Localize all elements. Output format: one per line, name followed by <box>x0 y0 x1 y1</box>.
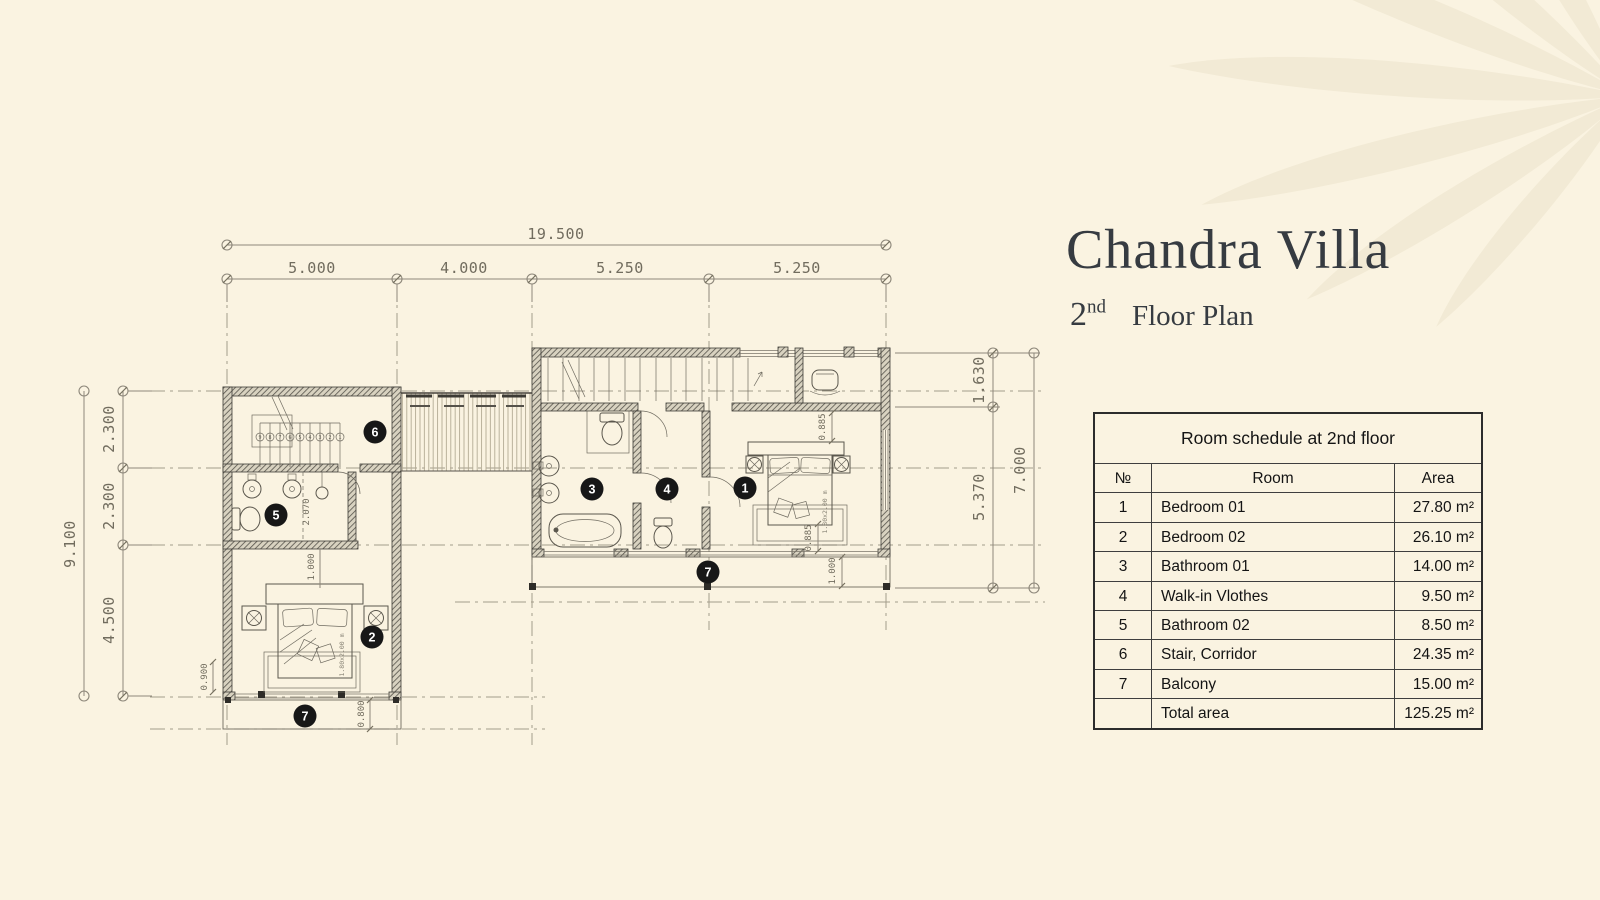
stair-tread-numbers: 9 8 7 6 5 4 3 2 1 <box>256 433 344 441</box>
dim-2070: 2.070 <box>302 498 312 525</box>
dim-right-2: 5.370 <box>970 473 988 521</box>
dim-left-3: 4.500 <box>100 596 118 644</box>
schedule-cell-room: Total area <box>1152 698 1395 727</box>
schedule-cell-room: Bedroom 01 <box>1152 492 1395 521</box>
svg-text:7: 7 <box>278 435 281 441</box>
schedule-header-room: Room <box>1152 463 1395 493</box>
dim-seg-4: 5.250 <box>773 259 821 277</box>
right-dimensions: 1.630 5.370 7.000 <box>895 348 1040 593</box>
schedule-cell-room: Stair, Corridor <box>1152 639 1395 668</box>
schedule-cell-area: 27.80 m² <box>1395 492 1481 521</box>
floor-ordinal: nd <box>1087 297 1106 318</box>
schedule-cell-area: 125.25 m² <box>1395 698 1481 727</box>
dim-left-2: 2.300 <box>100 482 118 530</box>
dim-left-1: 2.300 <box>100 405 118 453</box>
dim-overall-width: 19.500 <box>527 225 584 243</box>
room-marker-6: 6 <box>364 421 387 444</box>
svg-text:2: 2 <box>369 631 376 645</box>
dim-0885b: 0.885 <box>804 524 814 551</box>
svg-text:5: 5 <box>298 435 301 441</box>
schedule-cell-no: 1 <box>1095 492 1152 521</box>
room-marker-2: 2 <box>361 626 384 649</box>
schedule-cell-no: 4 <box>1095 581 1152 610</box>
schedule-cell-no: 5 <box>1095 610 1152 639</box>
floor-number: 2 <box>1070 296 1087 333</box>
room-marker-3: 3 <box>581 478 604 501</box>
schedule-header-no: № <box>1095 463 1152 493</box>
svg-text:1: 1 <box>338 435 341 441</box>
bedroom-01-furniture: 1.80x2.00 m <box>746 442 850 545</box>
schedule-cell-no: 2 <box>1095 522 1152 551</box>
dim-0885a: 0.885 <box>818 413 828 440</box>
page: 19.500 5.000 4.000 5.250 5.250 9.100 2.3… <box>0 0 1600 900</box>
left-dimensions: 9.100 2.300 2.300 4.500 <box>61 386 152 701</box>
svg-text:3: 3 <box>318 435 321 441</box>
room-schedule-table: Room schedule at 2nd floor № Room Area 1… <box>1093 412 1483 730</box>
dim-seg-2: 4.000 <box>440 259 488 277</box>
svg-text:2: 2 <box>328 435 331 441</box>
svg-text:5: 5 <box>273 509 280 523</box>
dim-seg-3: 5.250 <box>596 259 644 277</box>
schedule-cell-no: 7 <box>1095 669 1152 698</box>
dim-right-1: 1.630 <box>970 356 988 404</box>
schedule-cell-area: 24.35 m² <box>1395 639 1481 668</box>
dim-0900: 0.900 <box>200 663 210 690</box>
schedule-cell-no <box>1095 698 1152 727</box>
dim-overall-height-left: 9.100 <box>61 520 79 568</box>
room-marker-4: 4 <box>656 478 679 501</box>
dim-0800: 0.800 <box>357 700 367 727</box>
bed-size-label-1: 1.80x2.00 m <box>821 490 829 533</box>
schedule-cell-area: 9.50 m² <box>1395 581 1481 610</box>
schedule-cell-no: 6 <box>1095 639 1152 668</box>
stair-corridor <box>548 358 762 401</box>
schedule-title: Room schedule at 2nd floor <box>1095 414 1481 463</box>
schedule-cell-area: 15.00 m² <box>1395 669 1481 698</box>
title-block: Chandra Villa 2ndFloor Plan <box>1066 218 1390 334</box>
room-marker-1: 1 <box>734 477 757 500</box>
dim-1000a: 1.000 <box>307 553 317 580</box>
dim-1000b: 1.000 <box>828 557 838 584</box>
svg-text:3: 3 <box>589 483 596 497</box>
svg-text:4: 4 <box>308 435 311 441</box>
svg-text:7: 7 <box>705 566 712 580</box>
schedule-cell-room: Bathroom 02 <box>1152 610 1395 639</box>
svg-text:6: 6 <box>372 426 379 440</box>
svg-text:6: 6 <box>288 435 291 441</box>
room-marker-7-left: 7 <box>294 705 317 728</box>
svg-text:1: 1 <box>742 482 749 496</box>
bathroom-01-fixtures <box>533 411 667 547</box>
schedule-cell-area: 8.50 m² <box>1395 610 1481 639</box>
schedule-cell-no: 3 <box>1095 551 1152 580</box>
floor-label: Floor Plan <box>1132 300 1254 332</box>
room-marker-7-right: 7 <box>697 561 720 584</box>
schedule-header-area: Area <box>1395 463 1481 493</box>
walk-in-fixtures <box>641 473 740 548</box>
schedule-grid: № Room Area 1 Bedroom 01 27.80 m² 2 Bedr… <box>1095 463 1481 728</box>
bathroom-02-fixtures <box>232 472 360 540</box>
schedule-cell-room: Walk-in Vlothes <box>1152 581 1395 610</box>
room-marker-5: 5 <box>265 504 288 527</box>
schedule-cell-area: 14.00 m² <box>1395 551 1481 580</box>
svg-text:4: 4 <box>664 483 671 497</box>
dim-seg-1: 5.000 <box>288 259 336 277</box>
villa-title: Chandra Villa <box>1066 218 1390 282</box>
svg-text:9: 9 <box>258 435 261 441</box>
stair-left: 9 8 7 6 5 4 3 2 1 <box>252 396 344 467</box>
bed-size-label-2: 1.80x2.00 m <box>338 633 346 676</box>
svg-text:7: 7 <box>302 710 309 724</box>
floor-plan-subtitle: 2ndFloor Plan <box>1070 296 1390 334</box>
schedule-cell-room: Bathroom 01 <box>1152 551 1395 580</box>
svg-text:8: 8 <box>268 435 271 441</box>
schedule-cell-room: Bedroom 02 <box>1152 522 1395 551</box>
dim-overall-height-right: 7.000 <box>1011 446 1029 494</box>
schedule-cell-room: Balcony <box>1152 669 1395 698</box>
top-dimensions: 19.500 5.000 4.000 5.250 5.250 <box>222 225 891 302</box>
schedule-cell-area: 26.10 m² <box>1395 522 1481 551</box>
bridge-walkway <box>401 393 532 471</box>
